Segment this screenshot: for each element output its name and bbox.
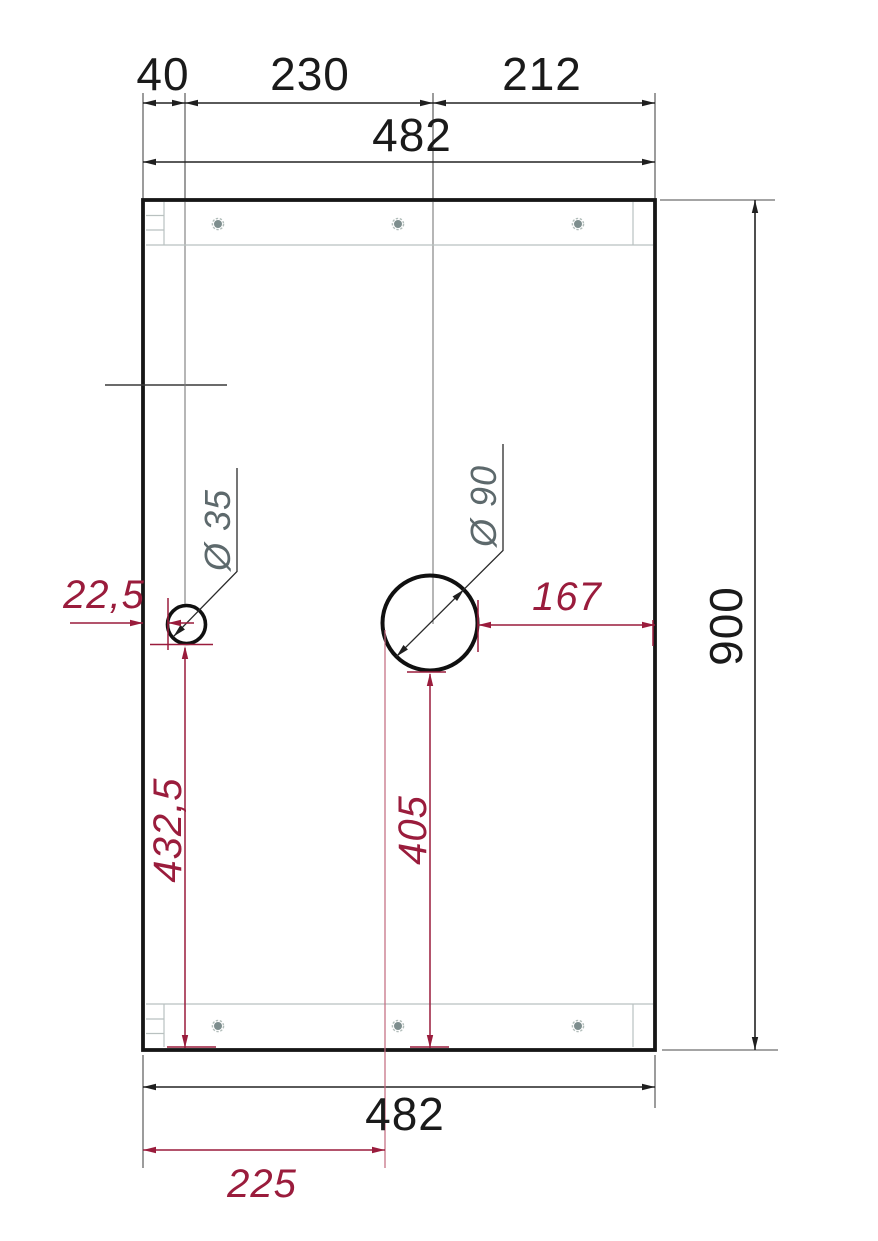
arrowhead <box>642 159 655 165</box>
arrowhead <box>143 159 156 165</box>
arrowhead <box>433 100 446 106</box>
arrowhead <box>642 1084 655 1090</box>
arrowhead <box>143 1147 156 1153</box>
arrowhead <box>752 1037 758 1050</box>
dim-text-900: 900 <box>700 586 752 666</box>
arrowhead <box>143 100 156 106</box>
dim-text-482-top: 482 <box>372 109 452 161</box>
dim-text-212: 212 <box>502 48 582 100</box>
arrowhead <box>752 200 758 213</box>
screw-hole <box>392 218 403 229</box>
dim-text-167: 167 <box>532 575 602 619</box>
arrowhead <box>185 100 198 106</box>
technical-drawing: 40 230 212 482 900 482 22,5 167 432,5 40… <box>0 0 878 1241</box>
dim-text-405: 405 <box>391 795 435 865</box>
dim-text-40: 40 <box>136 48 189 100</box>
dim-text-482-bottom: 482 <box>365 1088 445 1140</box>
arrowhead <box>130 620 143 626</box>
dim-text-432-5: 432,5 <box>146 777 190 882</box>
dim-text-22-5: 22,5 <box>62 573 145 617</box>
arrowhead <box>420 100 433 106</box>
screw-hole <box>212 218 223 229</box>
arrowhead <box>372 1147 385 1153</box>
screw-hole <box>572 218 583 229</box>
arrowhead <box>642 100 655 106</box>
arrowhead <box>172 100 185 106</box>
dim-text-230: 230 <box>270 48 350 100</box>
label-dia-35: Ø 35 <box>197 489 238 572</box>
screw-hole <box>572 1020 583 1031</box>
label-dia-90: Ø 90 <box>463 465 504 548</box>
screw-hole <box>392 1020 403 1031</box>
dim-text-225: 225 <box>226 1162 297 1206</box>
screw-hole <box>212 1020 223 1031</box>
arrowhead <box>143 1084 156 1090</box>
drawing-canvas: 40 230 212 482 900 482 22,5 167 432,5 40… <box>0 0 878 1241</box>
